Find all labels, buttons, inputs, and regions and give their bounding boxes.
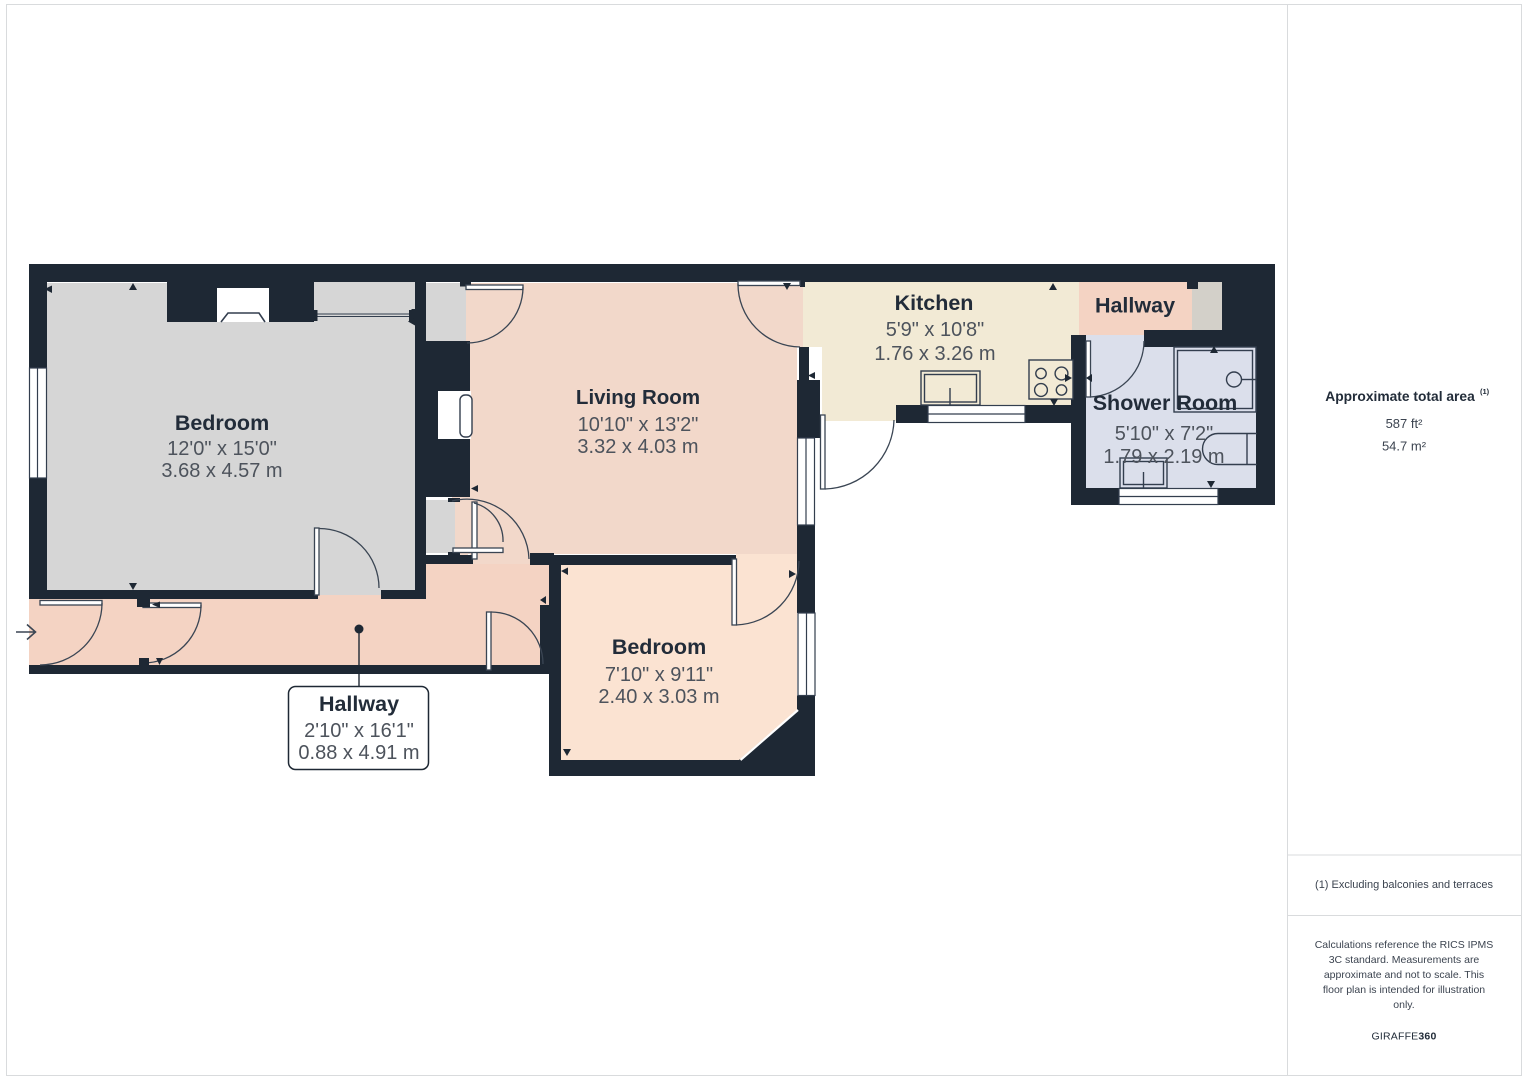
svg-text:587 ft²: 587 ft² (1386, 416, 1424, 431)
svg-text:(1): (1) (1480, 387, 1490, 396)
svg-text:Calculations reference the RIC: Calculations reference the RICS IPMS (1315, 939, 1494, 951)
svg-text:0.88 x 4.91 m: 0.88 x 4.91 m (298, 742, 419, 764)
svg-text:54.7 m²: 54.7 m² (1382, 439, 1427, 454)
svg-text:only.: only. (1393, 999, 1414, 1011)
svg-text:3.68 x 4.57 m: 3.68 x 4.57 m (161, 460, 282, 482)
svg-text:2.40 x 3.03 m: 2.40 x 3.03 m (598, 686, 719, 708)
svg-text:floor plan is intended for ill: floor plan is intended for illustration (1323, 984, 1485, 996)
svg-text:Bedroom: Bedroom (612, 635, 706, 659)
svg-text:5'10" x 7'2": 5'10" x 7'2" (1115, 423, 1214, 445)
svg-text:Shower Room: Shower Room (1093, 391, 1238, 415)
svg-text:3.32 x 4.03 m: 3.32 x 4.03 m (577, 436, 698, 458)
svg-text:Approximate total area: Approximate total area (1325, 389, 1475, 404)
svg-text:7'10" x 9'11": 7'10" x 9'11" (605, 664, 713, 686)
svg-text:2'10" x 16'1": 2'10" x 16'1" (304, 720, 414, 742)
svg-text:Kitchen: Kitchen (895, 291, 974, 315)
svg-text:5'9" x 10'8": 5'9" x 10'8" (886, 319, 985, 341)
svg-text:3C standard. Measurements are: 3C standard. Measurements are (1329, 954, 1480, 966)
svg-text:Hallway: Hallway (319, 692, 399, 716)
svg-text:Bedroom: Bedroom (175, 411, 269, 435)
svg-text:12'0" x 15'0": 12'0" x 15'0" (167, 438, 277, 460)
svg-text:10'10" x 13'2": 10'10" x 13'2" (578, 414, 699, 436)
svg-text:Hallway: Hallway (1095, 294, 1175, 318)
svg-text:1.76 x 3.26 m: 1.76 x 3.26 m (874, 343, 995, 365)
svg-text:approximate and not to scale.: approximate and not to scale. This (1324, 969, 1484, 981)
svg-text:(1) Excluding balconies and te: (1) Excluding balconies and terraces (1315, 879, 1493, 891)
svg-text:Living Room: Living Room (576, 386, 700, 409)
svg-text:GIRAFFE360: GIRAFFE360 (1371, 1031, 1436, 1043)
svg-text:1.79 x 2.19 m: 1.79 x 2.19 m (1103, 446, 1224, 468)
